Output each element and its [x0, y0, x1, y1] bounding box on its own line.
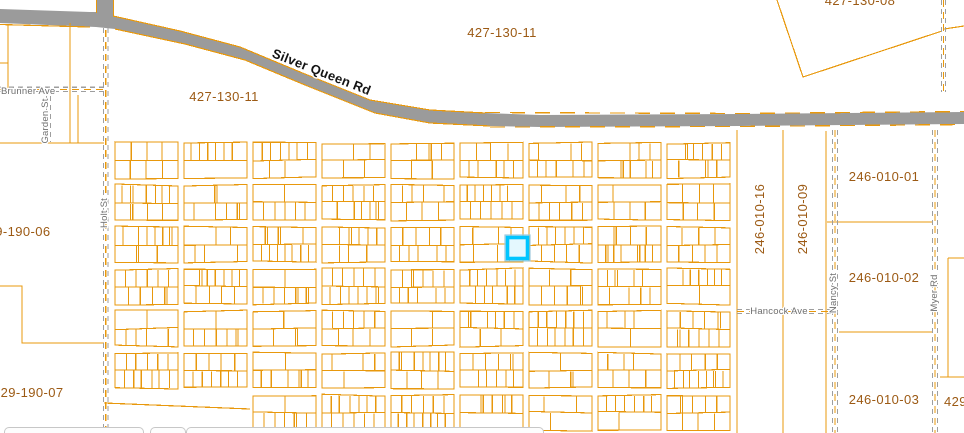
- bottom-panel-segment-1[interactable]: [4, 427, 144, 433]
- parcel-number-label: 429-190-07: [0, 385, 64, 400]
- map-viewport[interactable]: 427-130-11427-130-11427-130-08429-190-06…: [0, 0, 964, 433]
- parcel-grid: [115, 142, 730, 431]
- parcel-number-label: 246-010-03: [849, 392, 920, 407]
- selected-parcel[interactable]: [505, 235, 530, 261]
- parcel-number-label: 427-130-11: [467, 25, 537, 40]
- street-name-label: Brunner Ave: [1, 86, 55, 97]
- parcel-number-label: 429-190-06: [0, 224, 51, 239]
- road-edge-lines: [0, 0, 964, 127]
- map-labels: 427-130-11427-130-11427-130-08429-190-06…: [0, 0, 964, 409]
- bottom-panel-segment-3[interactable]: [186, 427, 544, 433]
- parcel-number-label: 246-010-01: [849, 169, 920, 184]
- bottom-panel-segment-2[interactable]: [150, 427, 186, 433]
- street-name-label: Garden St: [40, 98, 51, 143]
- street-name-label: Myer Rd: [929, 274, 940, 311]
- road-silver-queen: [0, 0, 964, 127]
- map-canvas[interactable]: 427-130-11427-130-11427-130-08429-190-06…: [0, 0, 964, 433]
- street-name-label: Hancock Ave: [750, 306, 807, 317]
- parcel-number-label: 429: [944, 394, 964, 409]
- parcel-number-label: 246-010-02: [849, 270, 920, 285]
- parcel-number-label: 246-010-09: [795, 184, 810, 255]
- street-name-label: Holt St: [99, 198, 110, 228]
- parcel-number-label: 427-130-11: [189, 89, 259, 104]
- parcel-number-label: 246-010-16: [752, 184, 767, 255]
- east-parcel-lines: [737, 0, 964, 433]
- west-parcel-lines: [0, 23, 250, 409]
- street-name-label: Nancy St: [828, 273, 839, 313]
- parcel-number-label: 427-130-08: [825, 0, 896, 8]
